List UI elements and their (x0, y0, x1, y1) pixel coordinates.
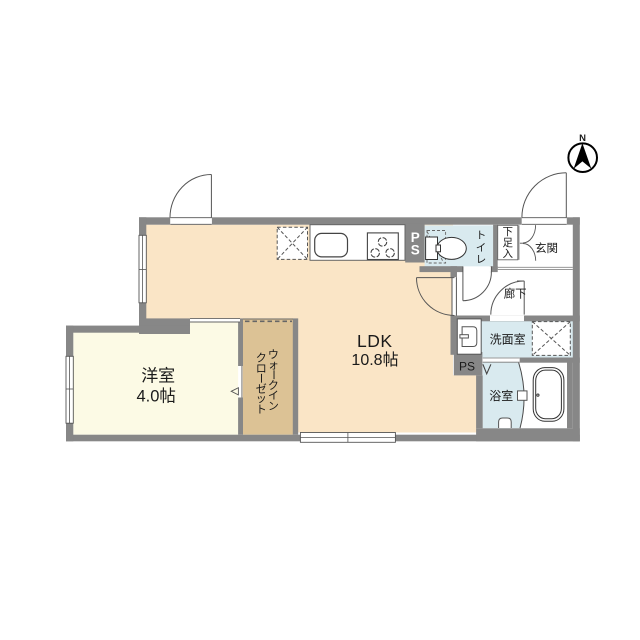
svg-text:ト: ト (476, 230, 487, 242)
svg-text:廊下: 廊下 (504, 286, 527, 300)
svg-text:S: S (411, 243, 420, 258)
svg-text:レ: レ (476, 254, 487, 266)
svg-text:10.8帖: 10.8帖 (351, 351, 398, 369)
svg-text:PS: PS (459, 360, 475, 374)
svg-text:4.0帖: 4.0帖 (136, 387, 175, 406)
svg-text:イ: イ (476, 242, 487, 254)
svg-text:入: 入 (502, 248, 513, 260)
svg-text:玄関: 玄関 (535, 241, 558, 255)
svg-text:ト: ト (256, 404, 267, 416)
svg-text:N: N (579, 133, 586, 144)
svg-text:ー: ー (267, 369, 279, 380)
svg-text:足: 足 (502, 237, 513, 249)
svg-text:ー: ー (255, 373, 267, 384)
svg-text:ン: ン (268, 401, 279, 413)
svg-text:洋室: 洋室 (141, 366, 175, 385)
svg-text:浴室: 浴室 (489, 388, 513, 403)
svg-text:LDK: LDK (357, 331, 393, 351)
svg-text:洗面室: 洗面室 (490, 332, 526, 347)
